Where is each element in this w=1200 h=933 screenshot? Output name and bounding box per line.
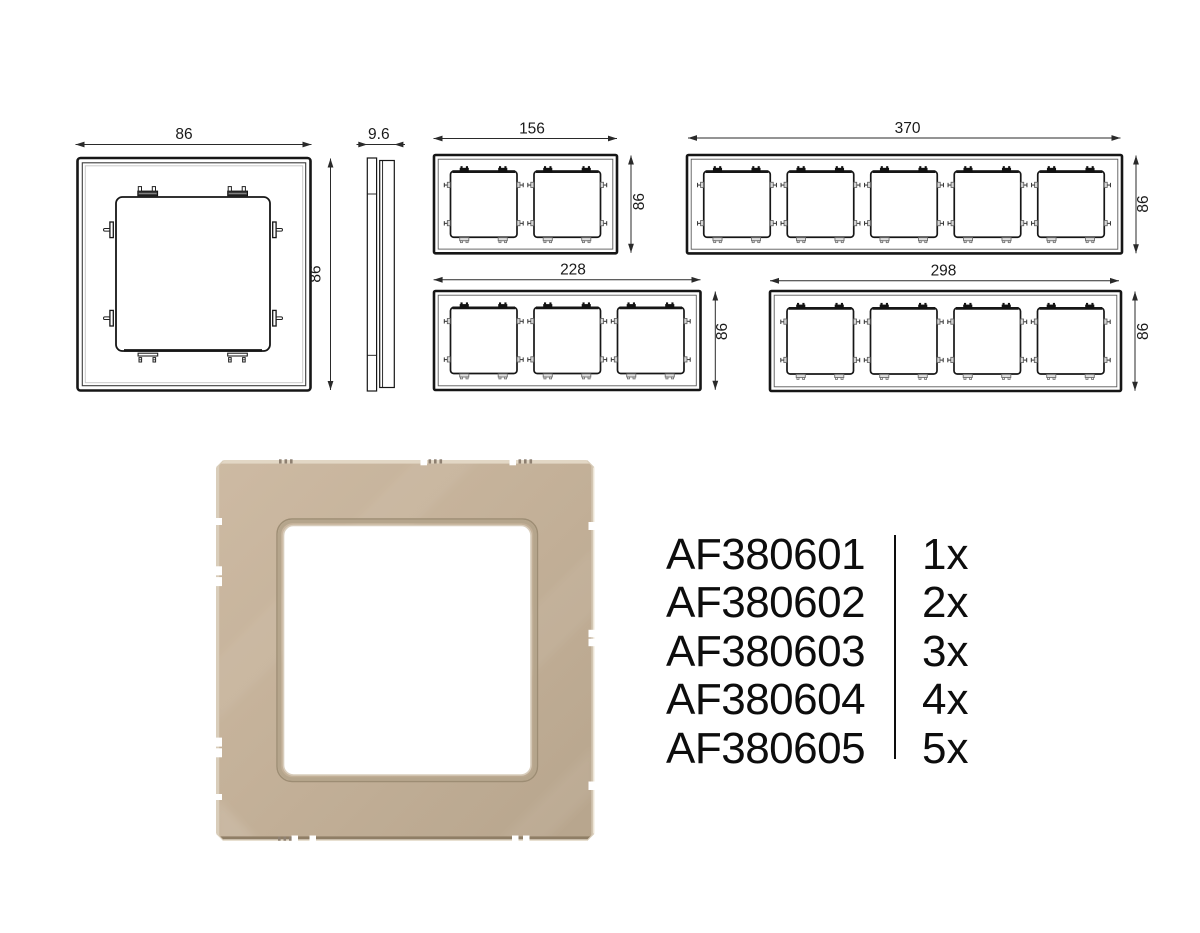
- svg-text:86: 86: [714, 323, 731, 340]
- svg-text:86: 86: [1135, 323, 1152, 340]
- svg-text:86: 86: [175, 126, 192, 143]
- svg-text:228: 228: [560, 261, 586, 278]
- svg-text:86: 86: [307, 265, 324, 282]
- svg-text:298: 298: [931, 262, 957, 279]
- svg-text:370: 370: [895, 120, 921, 137]
- svg-text:86: 86: [1135, 195, 1152, 212]
- svg-text:9.6: 9.6: [368, 126, 390, 143]
- svg-text:156: 156: [519, 121, 545, 138]
- svg-text:86: 86: [631, 193, 648, 210]
